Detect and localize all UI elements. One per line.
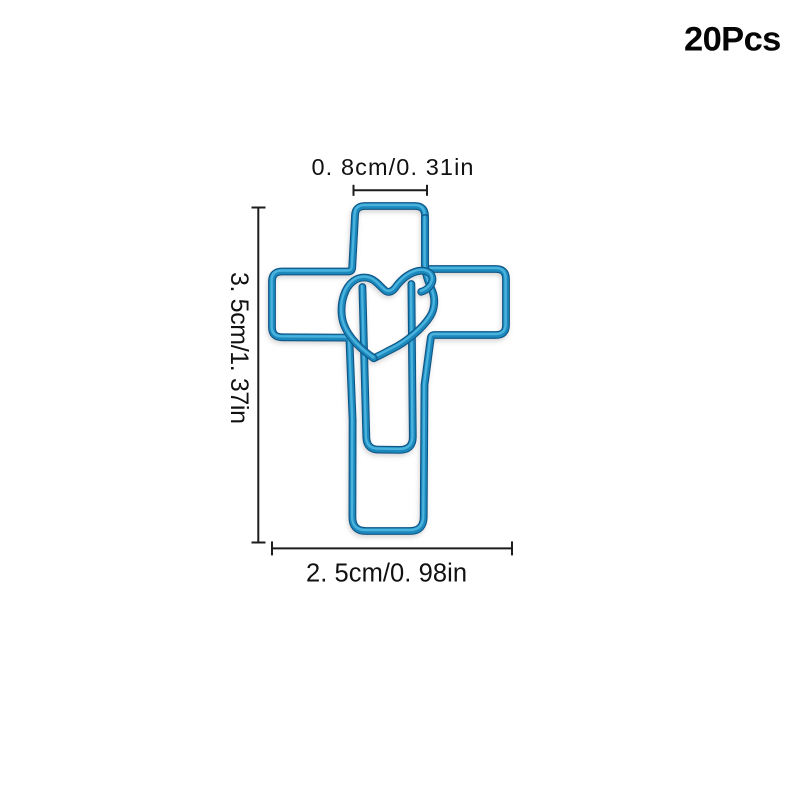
- svg-text:3. 5cm/1. 37in: 3. 5cm/1. 37in: [225, 272, 253, 424]
- svg-text:20Pcs: 20Pcs: [684, 21, 781, 59]
- svg-text:2. 5cm/0. 98in: 2. 5cm/0. 98in: [306, 560, 467, 588]
- svg-text:0. 8cm/0. 31in: 0. 8cm/0. 31in: [312, 154, 474, 180]
